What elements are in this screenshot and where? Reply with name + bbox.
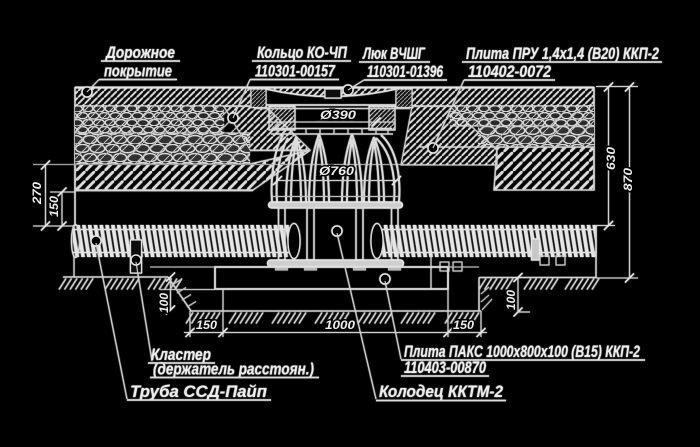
svg-text:Ø390: Ø390 (320, 108, 356, 122)
svg-text:покрытие: покрытие (104, 62, 172, 81)
svg-text:Кольцо КО-ЧП: Кольцо КО-ЧП (257, 43, 348, 62)
svg-text:Труба ССД-Пайп: Труба ССД-Пайп (130, 383, 267, 401)
svg-text:150: 150 (47, 196, 61, 217)
svg-text:110403-00870: 110403-00870 (404, 359, 487, 377)
svg-text:100: 100 (157, 293, 171, 313)
svg-text:Колодец ККТМ-2: Колодец ККТМ-2 (379, 383, 503, 401)
svg-text:100: 100 (504, 290, 518, 310)
svg-text:Люк ВЧШГ: Люк ВЧШГ (362, 44, 426, 63)
svg-text:Плита ПРУ 1,4х1,4 (В20) ККП-2: Плита ПРУ 1,4х1,4 (В20) ККП-2 (466, 44, 659, 63)
svg-text:110402-0072: 110402-0072 (468, 62, 551, 81)
svg-text:150: 150 (453, 318, 474, 332)
svg-text:1000: 1000 (325, 318, 355, 332)
svg-text:110301-01396: 110301-01396 (367, 62, 443, 81)
svg-text:630: 630 (604, 147, 618, 170)
svg-text:150: 150 (196, 318, 217, 332)
svg-text:110301-00157: 110301-00157 (255, 62, 336, 81)
svg-text:Дорожное: Дорожное (104, 43, 175, 62)
svg-text:Ø760: Ø760 (319, 164, 354, 178)
svg-text:270: 270 (30, 182, 44, 205)
svg-text:870: 870 (621, 168, 635, 191)
